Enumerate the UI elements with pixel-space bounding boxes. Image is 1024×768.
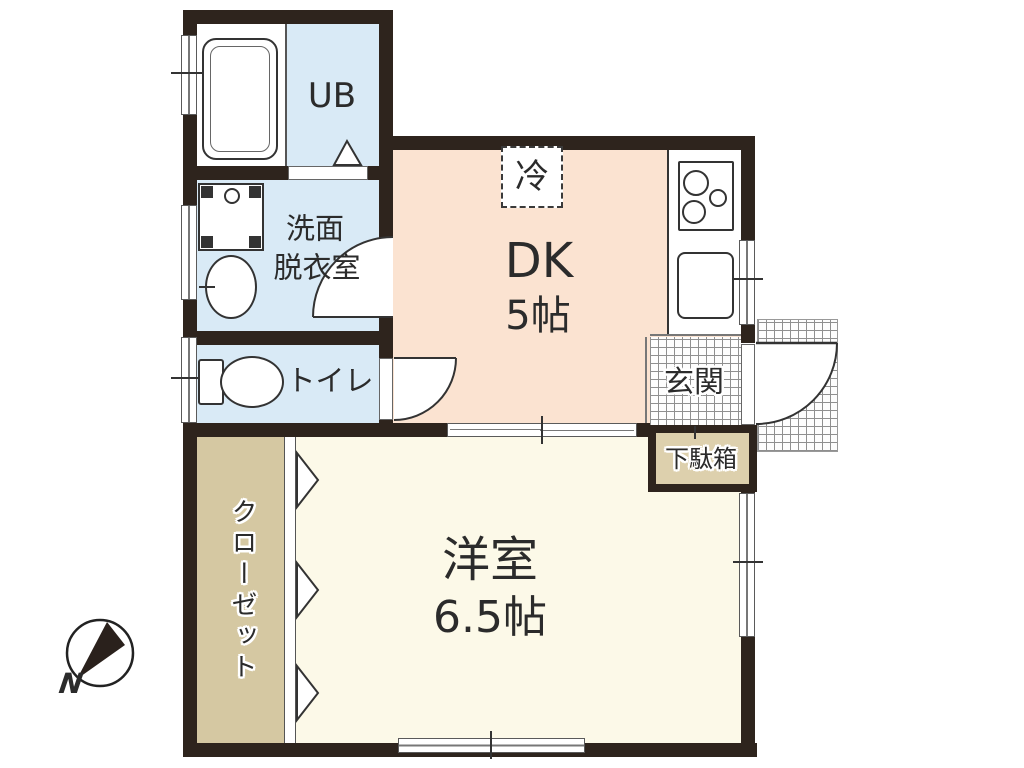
closet-door-track	[284, 437, 296, 743]
dk-label: DK	[505, 237, 573, 285]
compass-north-label: N	[57, 670, 84, 698]
entrance-porch	[757, 319, 838, 452]
dk-size-label: 5帖	[505, 296, 570, 336]
front-door-opening	[741, 344, 755, 425]
sliding-door-panel-left	[450, 425, 542, 430]
toilet-label: トイレ	[286, 367, 373, 396]
toilet-bowl-icon	[220, 356, 284, 408]
washer-pan-corner-bl	[201, 236, 213, 248]
window-toilet-left	[181, 337, 197, 423]
shoe-cabinet-tick	[694, 426, 696, 439]
window-washroom-left	[181, 205, 197, 300]
kitchen-sink-icon	[677, 252, 734, 319]
floor-plan: UB 洗面 脱衣室 トイレ 冷 DK 5帖 玄関 下駄箱 クローゼット 洋室 6…	[0, 0, 1024, 768]
washer-pan-drain	[224, 188, 240, 204]
wall-western-top	[183, 423, 447, 437]
entrance-step-line-h	[650, 334, 741, 336]
unit-bath-divider-line	[285, 24, 287, 166]
washer-pan-corner-tl	[201, 186, 213, 198]
wall-dk-top	[379, 136, 755, 150]
sliding-door-panel-right	[540, 430, 634, 435]
shoe-cabinet-label: 下駄箱	[665, 447, 737, 471]
stove-burner-3	[709, 189, 727, 207]
washroom-label-line2: 脱衣室	[273, 254, 360, 283]
sliding-door-tick	[541, 416, 543, 444]
sliding-window-tick	[490, 731, 492, 759]
washroom-label-line1: 洗面	[286, 215, 344, 244]
window-tick-western-right	[733, 561, 763, 563]
wall-washroom-bottom	[183, 331, 393, 345]
washer-pan-corner-tr	[249, 186, 261, 198]
window-kitchen-right	[739, 240, 755, 325]
toilet-door-opening	[379, 358, 393, 420]
refrigerator-label: 冷	[515, 160, 549, 194]
window-unit-bath-left	[181, 35, 197, 115]
entrance-label: 玄関	[664, 368, 724, 398]
entrance-step-line-v	[645, 337, 647, 428]
unit-bath-label: UB	[308, 79, 356, 113]
washer-pan-corner-br	[249, 236, 261, 248]
western-room-size-label: 6.5帖	[433, 596, 547, 640]
window-tick-kitchen	[733, 278, 763, 280]
window-western-right	[739, 493, 755, 637]
unit-bath-door-opening	[288, 166, 368, 180]
bathtub-inner-line	[210, 46, 270, 152]
stove-burner-1	[683, 170, 709, 196]
western-room-label: 洋室	[442, 536, 538, 584]
wash-basin-faucet	[199, 286, 215, 288]
closet-label: クローゼット	[229, 498, 255, 684]
stove-burner-2	[682, 200, 706, 224]
washroom-door-opening	[379, 238, 393, 318]
wall-ub-top	[183, 10, 393, 24]
